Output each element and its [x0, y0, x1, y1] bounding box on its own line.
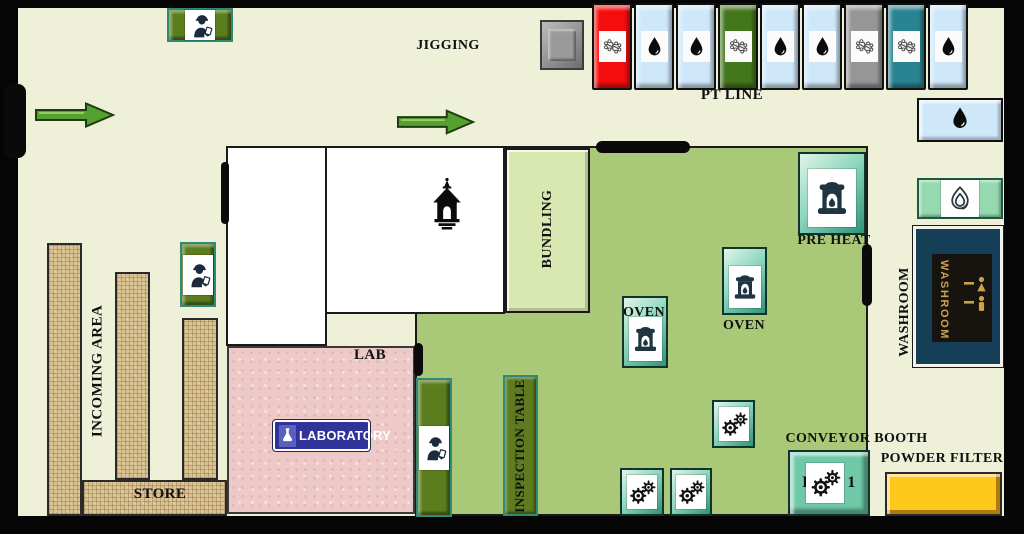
storage-rack-2: [115, 272, 150, 480]
white-room-door-marker: [221, 162, 229, 224]
gears-icon: [676, 475, 706, 509]
molecule-icon: [725, 31, 752, 62]
pt-tank: [928, 3, 968, 90]
molecule-icon: [851, 31, 878, 62]
incoming-area-label: INCOMING AREA: [90, 305, 107, 437]
washroom-sign-panel: WASHROOM: [932, 254, 992, 342]
droplet-icon: [767, 31, 794, 62]
pt-tank: [676, 3, 716, 90]
droplet-icon: [641, 31, 668, 62]
powder-filter-unit: [885, 472, 1002, 516]
inspection-table-label: INSPECTION TABLE: [512, 379, 528, 512]
flask-icon: [279, 425, 296, 447]
washroom-sign-text: WASHROOM: [938, 260, 950, 340]
worker-station-incoming: [180, 242, 216, 307]
conveyor-booth-label: CONVEYOR BOOTH: [784, 431, 929, 447]
gears-icon: [719, 407, 749, 441]
laboratory-sign-text: LABORATORY: [299, 428, 391, 443]
entrance-door-marker: [4, 84, 26, 158]
booth-number: 1: [847, 474, 855, 492]
droplet-icon: [947, 103, 973, 138]
lab-label: LAB: [340, 347, 400, 364]
flow-arrow-mid: [396, 108, 476, 141]
pt-tank: [718, 3, 758, 90]
storage-rack-1: [47, 243, 82, 516]
laboratory-sign: LABORATORY: [273, 420, 370, 451]
pre-heat-label: PRE HEAT: [795, 233, 873, 249]
worker-icon: [419, 426, 449, 470]
jigging-label: JIGGING: [398, 38, 498, 54]
store-label: STORE: [130, 486, 190, 503]
liquid-tank-horizontal: [917, 98, 1003, 142]
flow-arrow-left: [34, 101, 116, 134]
worker-station-lab: [416, 378, 452, 517]
washroom-sign: WASHROOM: [913, 226, 1003, 367]
worker-icon: [185, 10, 215, 40]
pre-heat-oven: [798, 152, 866, 235]
conveyor-booth-unit: P 1: [788, 450, 870, 516]
pt-line-label: PT LINE: [692, 87, 772, 104]
heater-station: [917, 178, 1003, 219]
flame-icon: [941, 180, 979, 217]
machine-gears-3: [712, 400, 755, 448]
pt-tank: [634, 3, 674, 90]
droplet-icon: [683, 31, 710, 62]
molecule-icon: [599, 31, 626, 62]
factory-floor-plan: WASHROOM P 1 LABORATO: [0, 0, 1024, 534]
pt-tank: [844, 3, 884, 90]
pt-tank: [760, 3, 800, 90]
white-room-right: [325, 146, 505, 314]
machine-gears-2: [670, 468, 712, 516]
powder-filter-label: POWDER FILTER: [880, 451, 1004, 467]
furnace-icon: [629, 317, 662, 361]
gears-icon: [627, 475, 657, 509]
jigging-machine-square: [540, 20, 584, 70]
washroom-label: WASHROOM: [897, 267, 913, 357]
worker-icon: [183, 255, 213, 295]
lab-door-marker: [414, 343, 423, 376]
pt-tank: [886, 3, 926, 90]
droplet-icon: [935, 31, 962, 62]
restroom-icon: [963, 264, 989, 335]
furnace-icon: [729, 266, 761, 308]
pt-tank: [802, 3, 842, 90]
production-top-door-marker: [596, 141, 690, 153]
molecule-icon: [893, 31, 920, 62]
worker-station-top: [167, 8, 233, 42]
storage-rack-3: [182, 318, 218, 480]
tower-icon: [427, 166, 467, 253]
white-room-left: [226, 146, 327, 346]
production-right-door-marker: [862, 244, 872, 306]
droplet-icon: [809, 31, 836, 62]
bundling-label: BUNDLING: [540, 190, 556, 269]
furnace-icon: [808, 169, 856, 227]
oven-right-label: OVEN: [718, 318, 770, 334]
oven-mid-label: OVEN: [618, 305, 670, 321]
oven-right: [722, 247, 767, 315]
pt-line-tanks: [592, 3, 968, 90]
machine-gears-1: [620, 468, 664, 516]
gears-icon: [806, 463, 844, 503]
machine-square: [548, 29, 576, 61]
pt-tank: [592, 3, 632, 90]
